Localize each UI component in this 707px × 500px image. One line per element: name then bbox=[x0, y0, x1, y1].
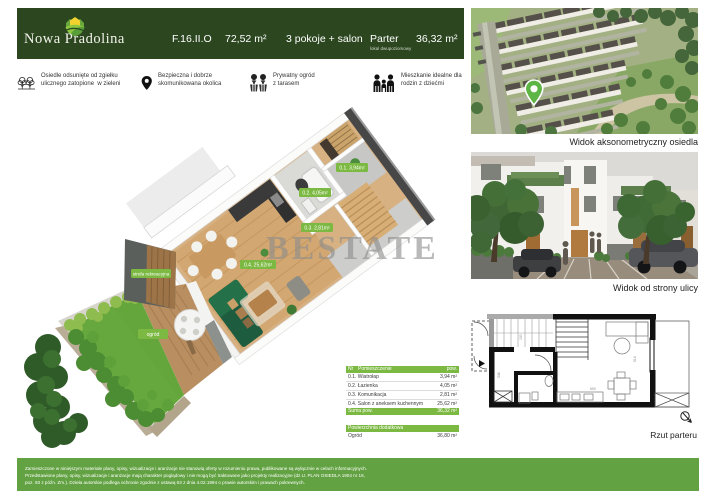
svg-text:BESTATE: BESTATE bbox=[266, 230, 439, 267]
svg-text:strefa rekreacyjna: strefa rekreacyjna bbox=[133, 272, 170, 277]
svg-text:150: 150 bbox=[519, 334, 523, 340]
svg-text:0.1. 3,94m²: 0.1. 3,94m² bbox=[339, 166, 365, 172]
svg-text:514: 514 bbox=[633, 356, 637, 362]
svg-text:0.2. 4,05m²: 0.2. 4,05m² bbox=[302, 191, 328, 197]
svg-text:346: 346 bbox=[497, 372, 501, 378]
svg-text:600: 600 bbox=[590, 387, 596, 391]
svg-text:ogród: ogród bbox=[147, 332, 160, 338]
